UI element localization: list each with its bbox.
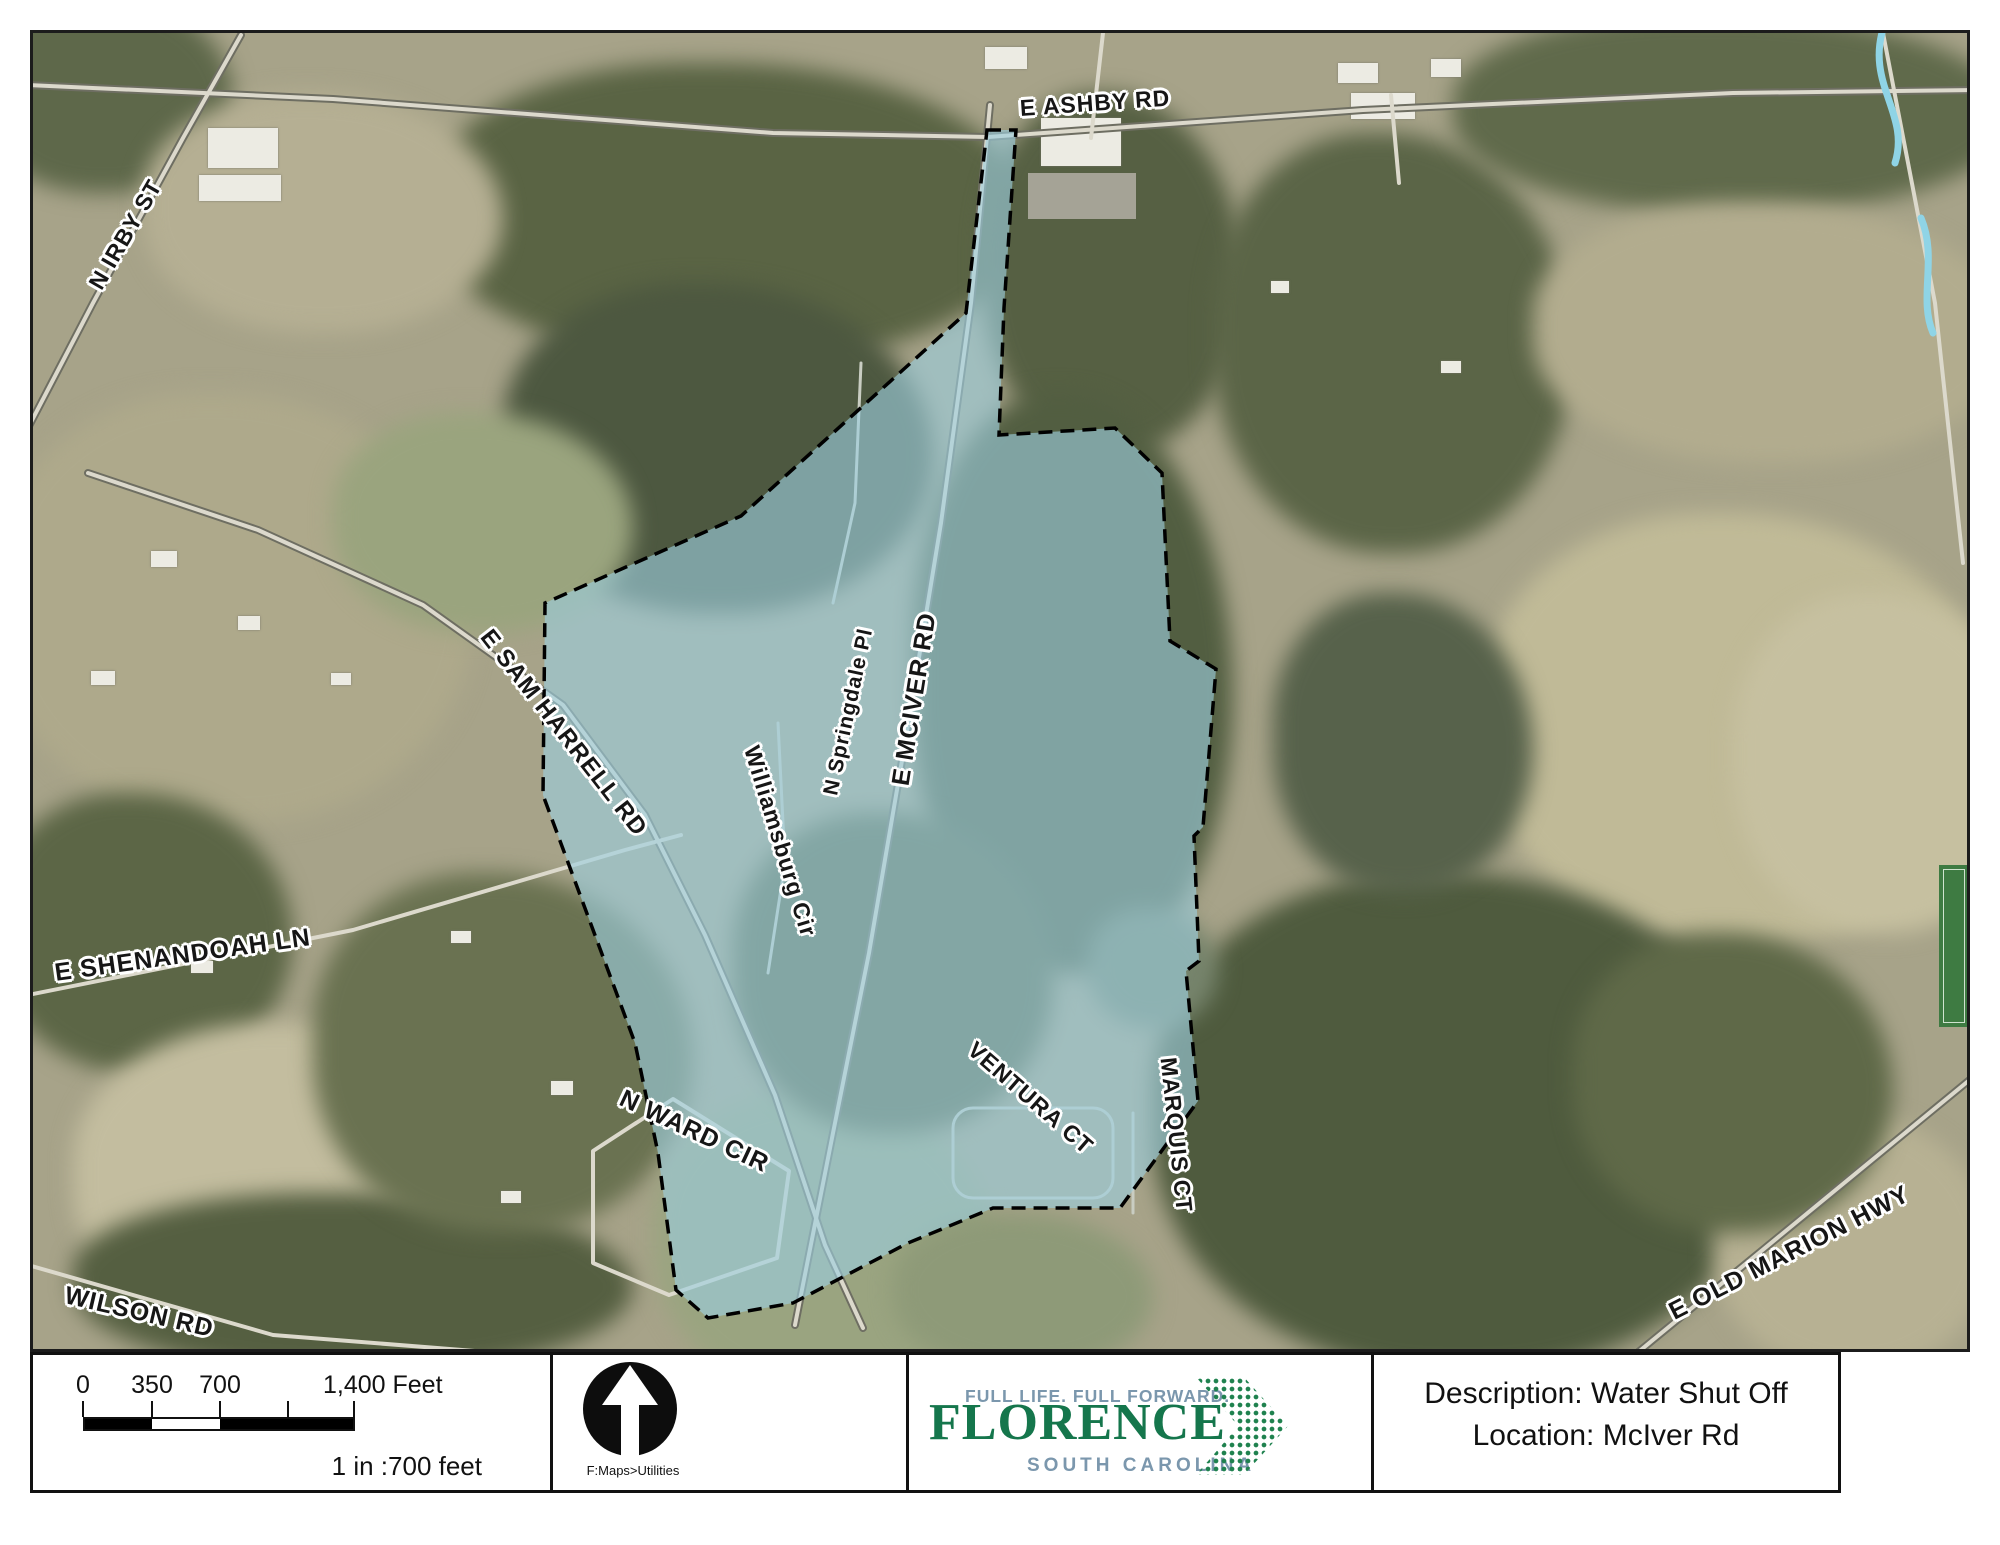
scale-ratio: 1 in :700 feet bbox=[332, 1451, 482, 1482]
water-shutoff-area-layer bbox=[33, 33, 1970, 1352]
map-location: Location: McIver Rd bbox=[1374, 1419, 1838, 1453]
scale-bar-panel: 0 350 700 1,400 Feet 1 in :700 feet bbox=[30, 1352, 553, 1493]
scale-bar bbox=[83, 1417, 355, 1431]
scale-tick-0: 0 bbox=[76, 1371, 90, 1400]
north-arrow-panel: F:Maps>Utilities bbox=[550, 1352, 909, 1493]
scale-tick-700: 700 bbox=[199, 1371, 241, 1400]
map-footer: 0 350 700 1,400 Feet 1 in :700 feet F:Ma… bbox=[30, 1352, 1841, 1493]
north-arrow-icon bbox=[575, 1357, 685, 1467]
map-canvas: E ASHBY RD N IRBY ST E SAM HARRELL RD E … bbox=[30, 30, 1970, 1352]
map-document-page: E ASHBY RD N IRBY ST E SAM HARRELL RD E … bbox=[0, 0, 2000, 1545]
water-shutoff-area-polygon bbox=[543, 130, 1216, 1318]
logo-city: FLORENCE bbox=[929, 1393, 1226, 1452]
scale-tick-1400: 1,400 Feet bbox=[323, 1371, 443, 1400]
map-source-path: F:Maps>Utilities bbox=[553, 1463, 713, 1478]
description-panel: Description: Water Shut Off Location: Mc… bbox=[1371, 1352, 1841, 1493]
map-description: Description: Water Shut Off bbox=[1374, 1377, 1838, 1411]
logo-panel: FULL LIFE. FULL FORWARD. FLORENCE SOUTH … bbox=[906, 1352, 1374, 1493]
scale-tick-350: 350 bbox=[131, 1371, 173, 1400]
